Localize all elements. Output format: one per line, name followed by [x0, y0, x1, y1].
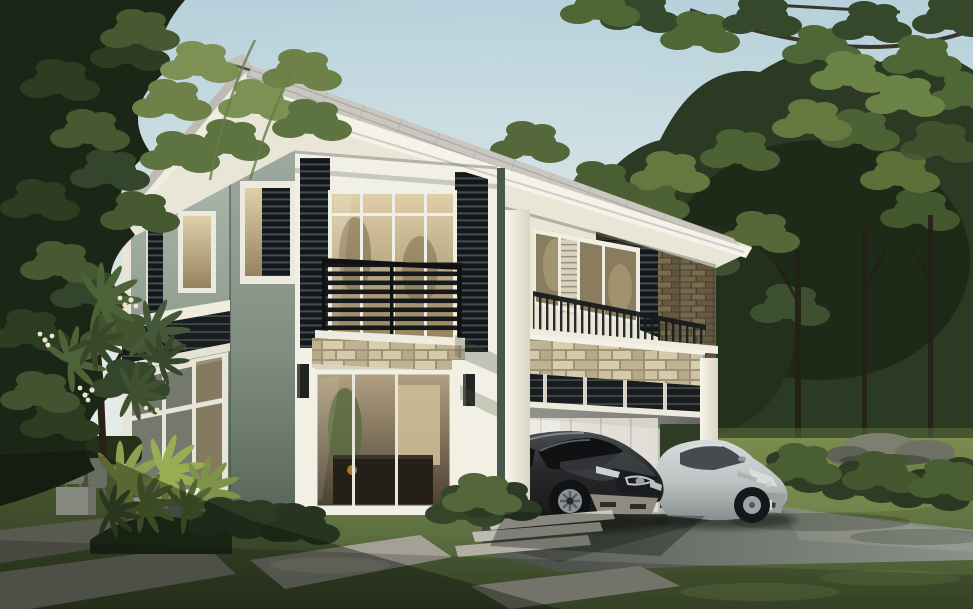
front-pillar	[505, 210, 530, 515]
balcony-railing	[322, 258, 462, 338]
car-badge	[766, 481, 772, 487]
tree-trunk	[928, 215, 933, 450]
ground-floor-doors	[310, 372, 452, 508]
small-window	[178, 211, 216, 293]
pillar-shadow-seam	[497, 168, 505, 515]
slatted-window	[240, 181, 296, 284]
interior-counter	[333, 458, 433, 504]
side-mirror	[738, 456, 746, 461]
car-badge	[636, 478, 645, 485]
rendered-photo	[0, 0, 973, 609]
front-balcony-bay	[292, 126, 497, 515]
tree-trunk	[862, 230, 867, 460]
